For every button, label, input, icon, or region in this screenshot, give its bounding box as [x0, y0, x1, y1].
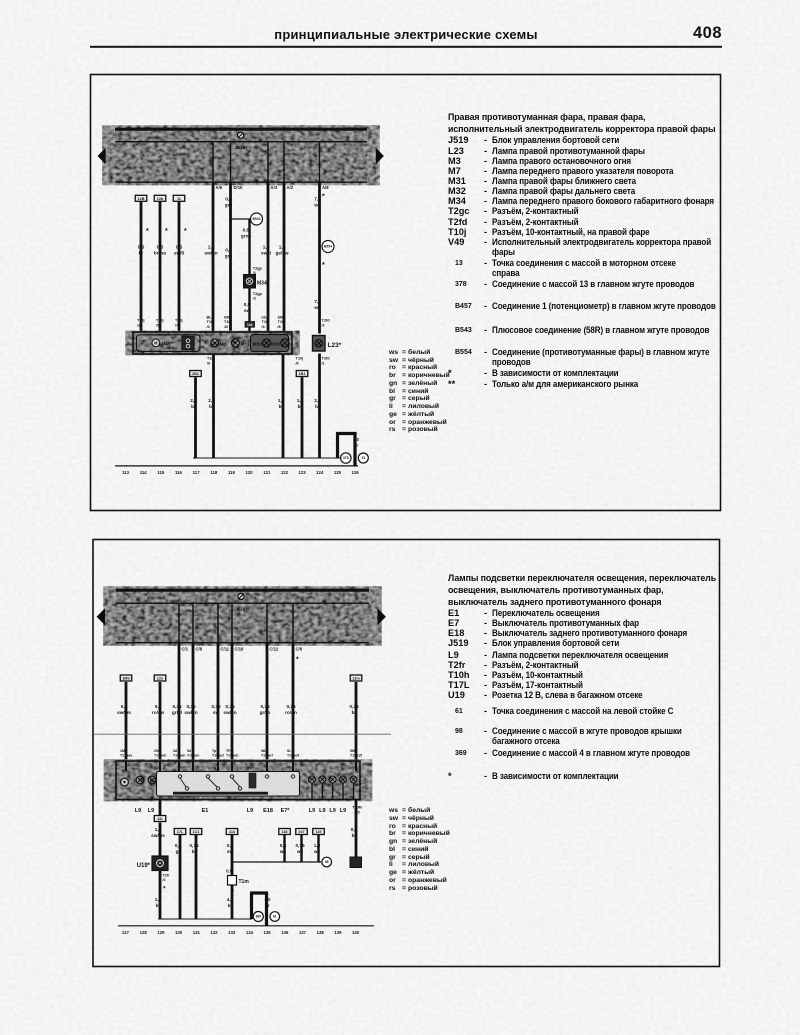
- svg-text:0,35: 0,35: [349, 704, 359, 709]
- svg-text:T10j: T10j: [137, 319, 145, 323]
- svg-text:11: 11: [177, 197, 181, 201]
- svg-text:7,5: 7,5: [314, 299, 321, 304]
- svg-text:A/3: A/3: [271, 185, 278, 190]
- svg-text:5M: 5M: [350, 749, 355, 753]
- svg-text:sw/gn: sw/gn: [223, 710, 236, 715]
- svg-text:gr: gr: [176, 849, 181, 854]
- svg-text:132: 132: [210, 930, 218, 935]
- svg-text:ws: ws: [296, 849, 304, 854]
- svg-text:0,5: 0,5: [155, 704, 162, 709]
- svg-text:br: br: [139, 251, 144, 256]
- svg-text:grne: grne: [241, 234, 252, 239]
- svg-text:sw/gn: sw/gn: [204, 251, 217, 256]
- svg-text:A/6: A/6: [216, 185, 223, 190]
- svg-text:sw: sw: [227, 849, 234, 854]
- svg-text:129: 129: [157, 930, 165, 935]
- svg-text:sw: sw: [213, 710, 220, 715]
- svg-text:M3: M3: [220, 341, 227, 347]
- svg-text:br: br: [279, 404, 284, 409]
- svg-text:/9: /9: [207, 362, 210, 366]
- svg-text:0,75: 0,75: [189, 843, 199, 848]
- svg-text:ws: ws: [313, 849, 321, 854]
- svg-text:J519: J519: [235, 145, 245, 150]
- svg-text:T2fr: T2fr: [163, 874, 170, 878]
- svg-text:4,0: 4,0: [265, 897, 271, 902]
- svg-text:br: br: [352, 833, 357, 838]
- svg-text:1,0: 1,0: [314, 843, 321, 848]
- svg-text:br: br: [352, 710, 357, 715]
- svg-text:118: 118: [281, 830, 287, 834]
- svg-text:ro/sw: ro/sw: [152, 710, 165, 715]
- svg-text:1,0: 1,0: [278, 398, 285, 403]
- svg-text:2: 2: [232, 889, 234, 893]
- svg-text:2,5: 2,5: [314, 398, 321, 403]
- svg-text:ro/gn: ro/gn: [285, 710, 297, 715]
- svg-text:sw: sw: [244, 308, 251, 313]
- svg-text:T10j: T10j: [207, 357, 215, 361]
- svg-text:SMl: SMl: [224, 316, 231, 320]
- svg-text:17L: 17L: [177, 830, 184, 834]
- svg-text:121: 121: [263, 470, 271, 475]
- svg-text:2,5: 2,5: [208, 398, 215, 403]
- svg-text:WL: WL: [261, 749, 267, 753]
- svg-text:ws: ws: [313, 305, 321, 310]
- svg-text:/5: /5: [156, 324, 159, 328]
- svg-text:*: *: [296, 657, 299, 664]
- svg-text:0,5: 0,5: [227, 843, 234, 848]
- svg-text:T10j: T10j: [156, 319, 164, 323]
- svg-text:T2fd: T2fd: [322, 319, 331, 323]
- svg-text:L9: L9: [247, 808, 253, 814]
- svg-text:br: br: [354, 443, 359, 448]
- svg-text:139: 139: [334, 930, 342, 935]
- svg-text:/8: /8: [278, 325, 281, 329]
- svg-text:A/8: A/8: [322, 185, 329, 190]
- svg-text:7,0: 7,0: [314, 197, 321, 202]
- svg-text:61: 61: [273, 915, 277, 919]
- svg-text:2,5: 2,5: [190, 398, 197, 403]
- svg-text:T10j: T10j: [296, 357, 304, 361]
- svg-text:*: *: [322, 194, 325, 201]
- svg-text:V49*: V49*: [162, 341, 174, 347]
- svg-text:br/ws: br/ws: [154, 251, 167, 256]
- svg-text:137: 137: [299, 930, 307, 935]
- svg-text:T10pub: T10pub: [226, 754, 238, 758]
- svg-text:gr/ro: gr/ro: [260, 710, 271, 715]
- svg-text:blu: blu: [262, 316, 268, 320]
- svg-text:/3: /3: [207, 325, 210, 329]
- svg-text:*: *: [146, 228, 149, 235]
- svg-text:E7*: E7*: [281, 808, 291, 814]
- svg-text:B543: B543: [253, 217, 261, 221]
- svg-text:1Ma: 1Ma: [120, 749, 127, 753]
- svg-text:sw/li: sw/li: [174, 251, 184, 256]
- svg-text:0,5: 0,5: [280, 843, 287, 848]
- svg-text:grn: grn: [225, 203, 233, 208]
- svg-text:4,0: 4,0: [353, 437, 359, 442]
- svg-text:117: 117: [193, 470, 201, 475]
- svg-text:TFL: TFL: [226, 749, 233, 753]
- svg-text:120: 120: [246, 470, 254, 475]
- svg-text:T2gp: T2gp: [253, 267, 263, 271]
- svg-text:0,5: 0,5: [226, 869, 232, 874]
- svg-text:122: 122: [281, 470, 289, 475]
- svg-text:/2: /2: [163, 878, 166, 882]
- svg-text:1,5: 1,5: [279, 245, 286, 250]
- svg-text:T10j: T10j: [224, 320, 232, 324]
- svg-text:/2: /2: [322, 324, 325, 328]
- svg-text:4,0: 4,0: [227, 897, 234, 902]
- svg-text:*: *: [165, 228, 168, 235]
- svg-text:br: br: [156, 903, 161, 908]
- svg-text:1,5: 1,5: [155, 827, 162, 832]
- svg-text:T10j: T10j: [278, 320, 286, 324]
- svg-text:0,5: 0,5: [175, 843, 182, 848]
- svg-text:*: *: [322, 262, 325, 269]
- svg-text:0,5: 0,5: [225, 197, 232, 202]
- svg-text:136: 136: [281, 930, 289, 935]
- svg-text:12n: 12n: [157, 677, 164, 681]
- svg-text:128: 128: [140, 930, 148, 935]
- svg-text:T2gp: T2gp: [253, 292, 263, 296]
- svg-text:T2fd: T2fd: [322, 357, 331, 361]
- svg-text:138: 138: [317, 930, 325, 935]
- svg-text:1B1: 1B1: [299, 372, 306, 376]
- svg-text:SMk: SMk: [278, 316, 287, 320]
- svg-text:369: 369: [256, 915, 262, 919]
- svg-text:0,5: 0,5: [225, 248, 232, 253]
- svg-text:0,35: 0,35: [225, 704, 235, 709]
- svg-text:124: 124: [316, 470, 324, 475]
- svg-text:br: br: [191, 404, 196, 409]
- svg-text:125: 125: [334, 470, 342, 475]
- svg-text:M32: M32: [271, 341, 281, 347]
- svg-text:98: 98: [325, 860, 329, 864]
- svg-text:br: br: [315, 404, 320, 409]
- svg-text:sw/gn: sw/gn: [184, 710, 197, 715]
- svg-text:C/11: C/11: [221, 647, 230, 652]
- svg-text:ws: ws: [313, 203, 321, 208]
- svg-text:M: M: [154, 341, 158, 346]
- svg-text:M33: M33: [253, 341, 263, 347]
- svg-text:2x7: 2x7: [298, 830, 304, 834]
- svg-text:/2: /2: [137, 324, 140, 328]
- svg-text:12m: 12m: [352, 677, 360, 681]
- svg-text:C/1: C/1: [182, 647, 189, 652]
- svg-text:br: br: [228, 903, 233, 908]
- svg-text:T10j: T10j: [262, 320, 270, 324]
- svg-text:10: 10: [224, 325, 228, 329]
- svg-text:127: 127: [122, 930, 130, 935]
- svg-text:L9: L9: [135, 808, 141, 814]
- svg-text:T10pu5: T10pu5: [287, 754, 299, 758]
- svg-text:C/12: C/12: [270, 647, 280, 652]
- svg-text:br: br: [265, 903, 270, 908]
- svg-text:116: 116: [175, 470, 183, 475]
- svg-text:M31: M31: [240, 341, 250, 347]
- svg-text:L9: L9: [329, 808, 335, 814]
- svg-text:/1: /1: [322, 362, 325, 366]
- svg-text:T10j: T10j: [175, 319, 183, 323]
- svg-text:br: br: [298, 404, 303, 409]
- svg-text:0,35: 0,35: [186, 704, 196, 709]
- svg-text:gr/bl: gr/bl: [172, 710, 182, 715]
- svg-text:br: br: [209, 404, 214, 409]
- svg-text:L23*: L23*: [328, 342, 342, 349]
- svg-text:ws: ws: [279, 849, 287, 854]
- svg-text:0,5: 0,5: [138, 245, 145, 250]
- svg-text:1,5: 1,5: [263, 245, 270, 250]
- svg-text:2B1: 2B1: [192, 372, 199, 376]
- svg-text:L9: L9: [319, 808, 325, 814]
- svg-text:133: 133: [228, 930, 236, 935]
- svg-text:123: 123: [299, 470, 307, 475]
- svg-text:Tp: Tp: [212, 749, 216, 753]
- svg-text:C/18: C/18: [235, 647, 245, 652]
- svg-text:L9: L9: [340, 808, 346, 814]
- svg-text:sw/ws: sw/ws: [117, 710, 131, 715]
- svg-text:E18: E18: [263, 808, 273, 814]
- svg-text:E1: E1: [202, 808, 209, 814]
- svg-text:C/8: C/8: [196, 647, 203, 652]
- svg-text:C/6: C/6: [296, 647, 303, 652]
- svg-text:T10pub: T10pub: [154, 754, 166, 758]
- svg-text:20w: 20w: [154, 749, 161, 753]
- svg-text:grn: grn: [225, 254, 233, 259]
- svg-text:0,5: 0,5: [351, 827, 358, 832]
- svg-text:/6: /6: [296, 362, 299, 366]
- svg-text:119: 119: [315, 830, 321, 834]
- svg-text:13: 13: [361, 456, 365, 460]
- svg-text:BLR: BLR: [207, 316, 215, 320]
- svg-text:134: 134: [246, 930, 254, 935]
- svg-text:378: 378: [343, 456, 349, 460]
- svg-text:/2: /2: [253, 297, 256, 301]
- svg-text:ge/sw: ge/sw: [275, 251, 288, 256]
- svg-text:T12pua: T12pua: [120, 754, 132, 758]
- svg-text:/7: /7: [175, 324, 178, 328]
- svg-text:12b: 12b: [157, 197, 164, 201]
- svg-text:0,5: 0,5: [121, 704, 128, 709]
- svg-text:113: 113: [122, 470, 130, 475]
- svg-text:T1m: T1m: [239, 879, 250, 885]
- svg-text:3d: 3d: [173, 749, 177, 753]
- svg-text:T10pun: T10pun: [187, 754, 199, 758]
- svg-text:0,5: 0,5: [243, 228, 250, 233]
- svg-text:119: 119: [228, 470, 236, 475]
- svg-text:T10j: T10j: [207, 320, 215, 324]
- svg-text:M34: M34: [257, 281, 267, 287]
- svg-text:U19*: U19*: [137, 863, 151, 869]
- svg-text:131: 131: [193, 930, 201, 935]
- svg-text:T10puh: T10puh: [173, 754, 185, 758]
- svg-text:sw/ws: sw/ws: [151, 833, 165, 838]
- svg-text:T10p15: T10p15: [350, 754, 362, 758]
- svg-text:br: br: [192, 849, 197, 854]
- svg-text:12r: 12r: [157, 817, 163, 821]
- svg-text:0,5: 0,5: [244, 302, 251, 307]
- svg-text:*: *: [184, 228, 187, 235]
- svg-text:126: 126: [351, 470, 359, 475]
- svg-text:1,5: 1,5: [155, 897, 162, 902]
- svg-text:12B: 12B: [138, 197, 145, 201]
- svg-text:114: 114: [140, 470, 148, 475]
- svg-text:L9: L9: [148, 808, 154, 814]
- svg-text:5d: 5d: [187, 749, 191, 753]
- svg-text:135: 135: [264, 930, 272, 935]
- svg-text:0,5: 0,5: [176, 245, 183, 250]
- svg-text:1,0: 1,0: [208, 245, 215, 250]
- svg-text:118: 118: [210, 470, 218, 475]
- svg-text:B554: B554: [324, 245, 332, 249]
- svg-text:0,35: 0,35: [286, 704, 296, 709]
- svg-text:J519: J519: [236, 607, 246, 612]
- svg-text:0,35: 0,35: [211, 704, 221, 709]
- svg-text:A/2: A/2: [287, 185, 294, 190]
- svg-text:1Mb: 1Mb: [122, 677, 130, 681]
- svg-text:1C1: 1C1: [193, 830, 200, 834]
- svg-text:1,0: 1,0: [297, 398, 304, 403]
- svg-text:146: 146: [247, 323, 253, 327]
- svg-text:0,35: 0,35: [260, 704, 270, 709]
- svg-text:L9: L9: [309, 808, 315, 814]
- svg-text:115: 115: [157, 470, 165, 475]
- svg-text:0,75: 0,75: [295, 843, 305, 848]
- svg-text:140: 140: [352, 930, 360, 935]
- svg-text:0,35: 0,35: [172, 704, 182, 709]
- svg-text:114: 114: [229, 830, 236, 834]
- svg-text:0,5: 0,5: [157, 245, 164, 250]
- svg-text:T10pu2: T10pu2: [212, 754, 224, 758]
- svg-text:D/10: D/10: [234, 185, 244, 190]
- svg-text:130: 130: [175, 930, 183, 935]
- svg-text:sw/li: sw/li: [261, 251, 271, 256]
- svg-text:T10pu7: T10pu7: [261, 754, 273, 758]
